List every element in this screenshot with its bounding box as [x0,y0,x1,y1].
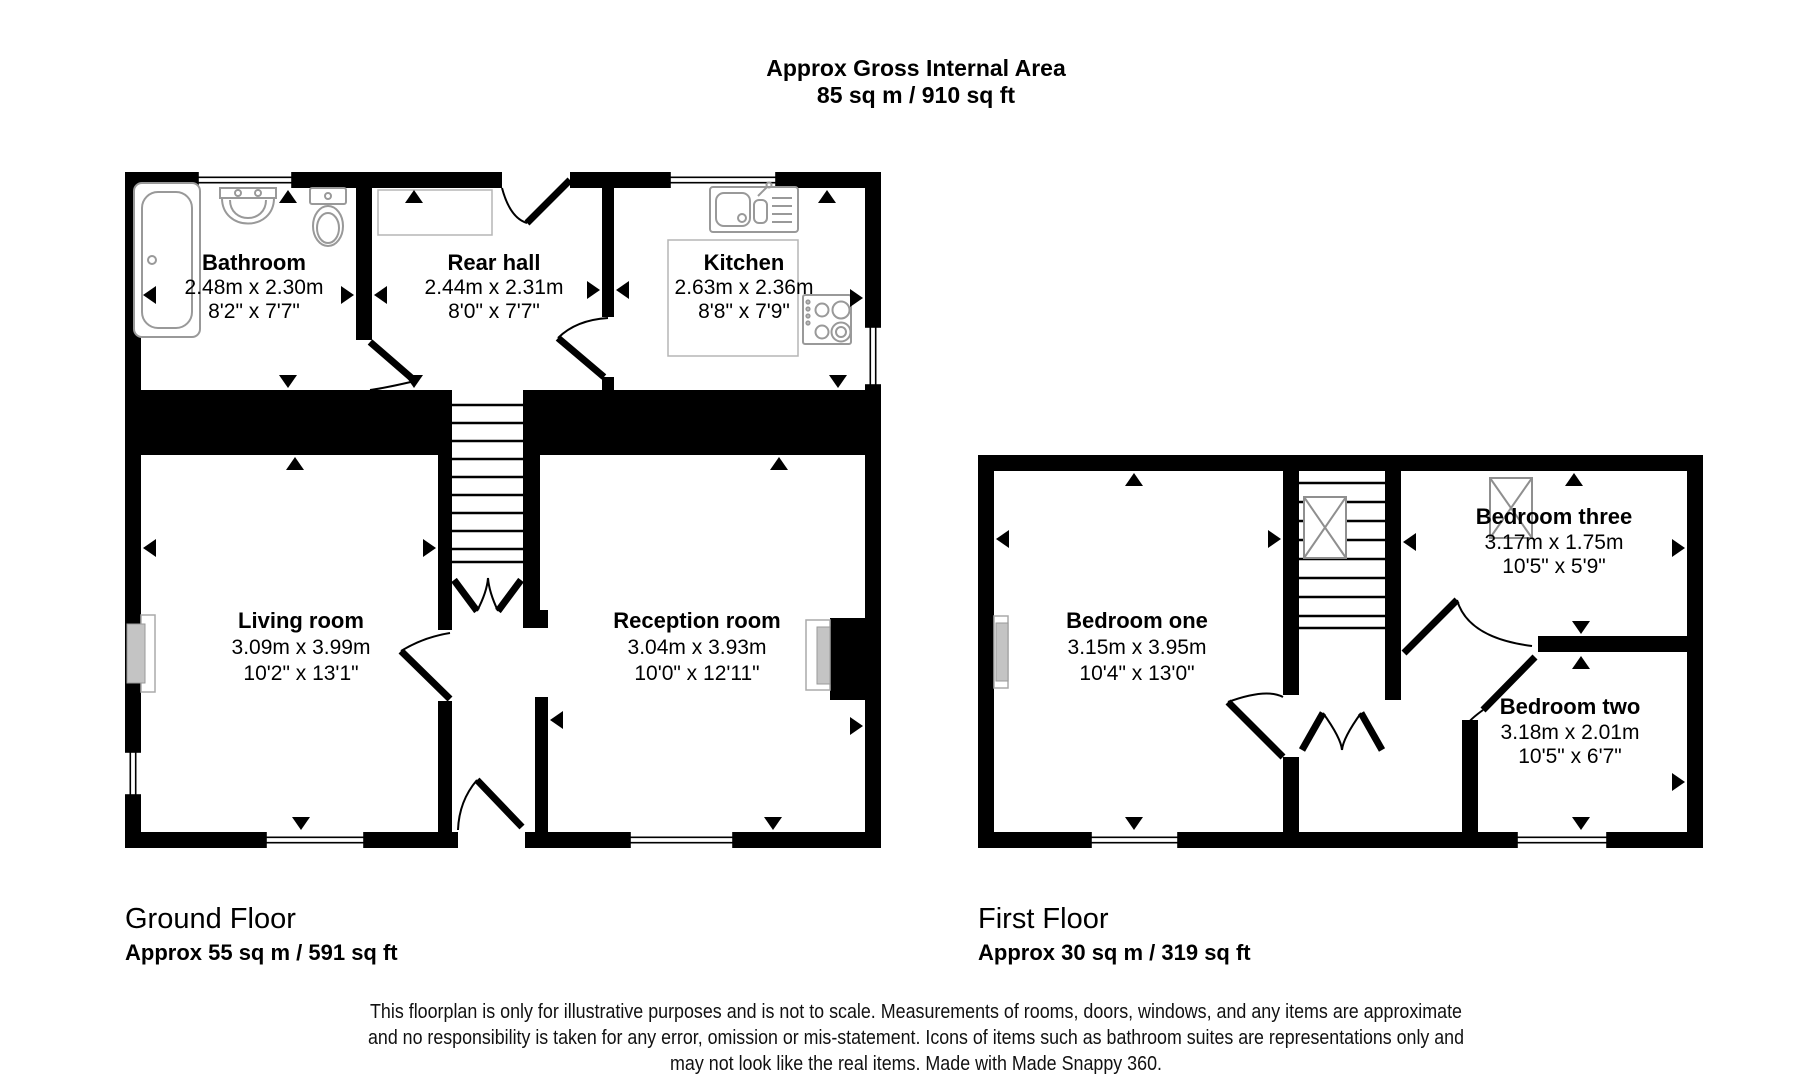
basin-icon [220,188,276,224]
ground-floor-area: Approx 55 sq m / 591 sq ft [125,940,398,965]
ground-floor-plan: Bathroom 2.48m x 2.30m 8'2" x 7'7" Rear … [125,172,881,848]
ground-floor-stairs [452,405,523,562]
kitchen-metric: 2.63m x 2.36m [675,276,814,299]
bedroom-one-metric: 3.15m x 3.95m [1068,636,1207,659]
living-room-name: Living room [238,608,364,633]
toilet-icon [310,188,346,246]
living-room-window-icon [266,832,364,848]
bathroom-name: Bathroom [202,250,306,275]
floor-titles: Ground Floor Approx 55 sq m / 591 sq ft … [125,903,1251,965]
bathroom-imperial: 8'2" x 7'7" [208,300,300,323]
bedroom-two-metric: 3.18m x 2.01m [1501,721,1640,744]
disclaimer-line3: may not look like the real items. Made w… [670,1053,1162,1075]
landing-double-doors-icon [1302,713,1382,750]
disclaimer-line2: and no responsibility is taken for any e… [368,1027,1464,1049]
disclaimer: This floorplan is only for illustrative … [368,1001,1464,1075]
reception-room-imperial: 10'0" x 12'11" [634,662,759,685]
disclaimer-line1: This floorplan is only for illustrative … [370,1001,1462,1023]
bathroom-door-icon [370,342,415,390]
bedroom-three-door-icon [1404,600,1532,653]
bedroom-three-metric: 3.17m x 1.75m [1485,531,1624,554]
back-door-icon [502,180,570,223]
header-area: 85 sq m / 910 sq ft [817,82,1015,108]
bedroom-two-name: Bedroom two [1500,694,1641,719]
living-room-label: Living room 3.09m x 3.99m 10'2" x 13'1" [232,608,371,685]
kitchen-sink-icon [710,183,798,233]
ground-floor-title: Ground Floor [125,903,296,935]
hall-double-doors-icon [454,578,521,611]
bedroom-one-window-icon [1091,832,1178,848]
first-floor-plan: Bedroom one 3.15m x 3.95m 10'4" x 13'0" … [978,455,1703,848]
header-title: Approx Gross Internal Area [766,55,1066,81]
reception-room-metric: 3.04m x 3.93m [628,636,767,659]
hob-icon [803,295,851,344]
bathroom-label: Bathroom 2.48m x 2.30m 8'2" x 7'7" [185,250,324,323]
rear-hall-metric: 2.44m x 2.31m [425,276,564,299]
living-room-fireplace-icon [127,615,155,692]
hall-counter-outline [378,190,492,235]
kitchen-label: Kitchen 2.63m x 2.36m 8'8" x 7'9" [675,250,814,323]
kitchen-side-window-icon [865,327,881,385]
stairwell-skylight-icon [1304,497,1346,558]
bathroom-window-icon [198,172,292,188]
bathtub-icon [134,183,200,337]
reception-room-label: Reception room 3.04m x 3.93m 10'0" x 12'… [613,608,780,685]
living-room-door-icon [401,633,450,699]
living-room-metric: 3.09m x 3.99m [232,636,371,659]
bedroom-two-window-icon [1517,832,1607,848]
header: Approx Gross Internal Area 85 sq m / 910… [766,55,1066,108]
rear-hall-imperial: 8'0" x 7'7" [448,300,540,323]
floorplan-page: Approx Gross Internal Area 85 sq m / 910… [0,0,1803,1080]
first-floor-title: First Floor [978,903,1109,935]
bedroom-three-imperial: 10'5" x 5'9" [1502,555,1606,578]
ground-floor-labels: Bathroom 2.48m x 2.30m 8'2" x 7'7" Rear … [185,250,814,685]
first-floor-stairs [1299,483,1385,628]
bedroom-one-name: Bedroom one [1066,608,1208,633]
bedroom-one-label: Bedroom one 3.15m x 3.95m 10'4" x 13'0" [1066,608,1208,685]
bedroom-two-imperial: 10'5" x 6'7" [1518,745,1622,768]
floorplan-svg: Approx Gross Internal Area 85 sq m / 910… [0,0,1803,1080]
living-room-imperial: 10'2" x 13'1" [243,662,358,685]
kitchen-name: Kitchen [704,250,785,275]
rear-hall-name: Rear hall [448,250,541,275]
reception-window-icon [630,832,733,848]
kitchen-window-icon [670,172,776,188]
bedroom-three-label: Bedroom three 3.17m x 1.75m 10'5" x 5'9" [1476,504,1632,578]
bedroom-two-label: Bedroom two 3.18m x 2.01m 10'5" x 6'7" [1500,694,1641,768]
bedroom-one-fireplace-icon [994,616,1008,688]
living-room-side-window-icon [125,752,141,795]
bedroom-one-door-icon [1228,693,1283,757]
reception-fireplace-icon [806,618,865,700]
bathroom-metric: 2.48m x 2.30m [185,276,324,299]
first-floor-doors [1228,600,1535,757]
bedroom-three-name: Bedroom three [1476,504,1632,529]
kitchen-imperial: 8'8" x 7'9" [698,300,790,323]
bedroom-one-imperial: 10'4" x 13'0" [1079,662,1194,685]
rear-hall-label: Rear hall 2.44m x 2.31m 8'0" x 7'7" [425,250,564,323]
first-floor-area: Approx 30 sq m / 319 sq ft [978,940,1251,965]
kitchen-door-icon [558,318,608,377]
reception-room-name: Reception room [613,608,780,633]
front-door-icon [458,780,522,830]
